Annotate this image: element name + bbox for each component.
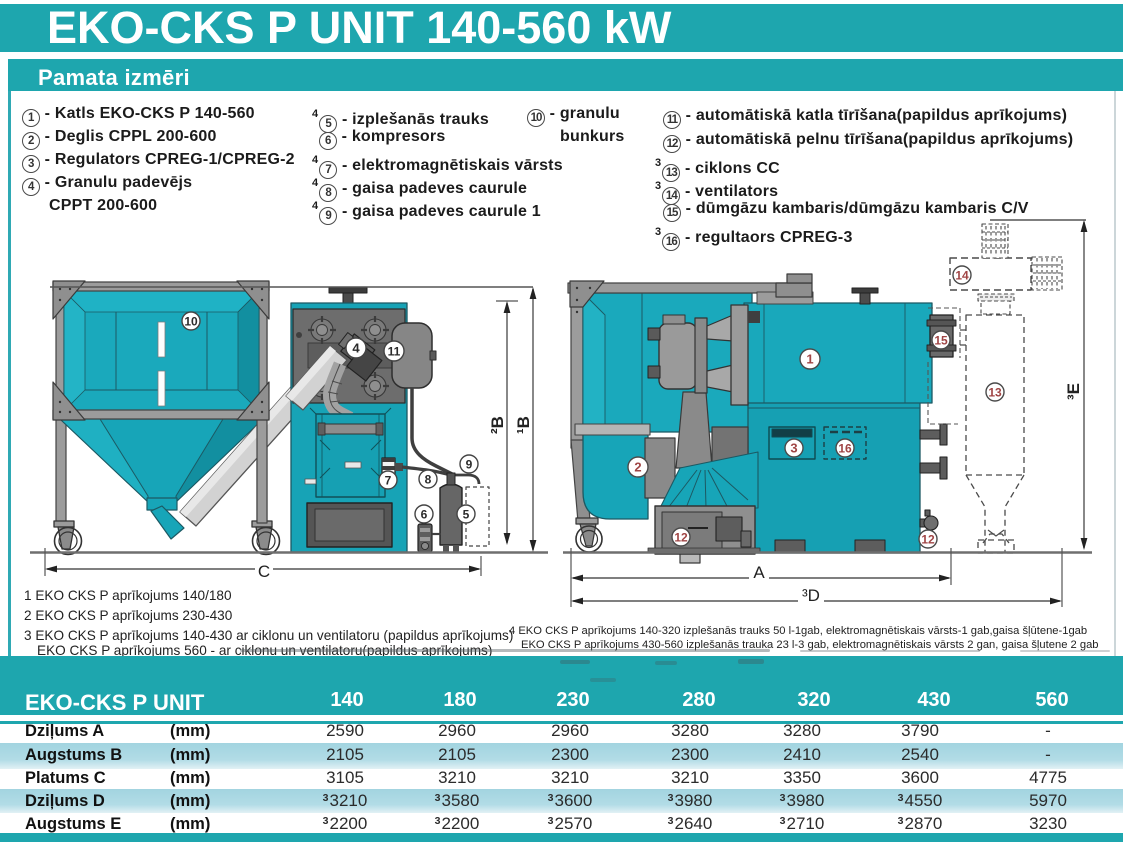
svg-text:3: 3 <box>790 441 797 456</box>
svg-text:2: 2 <box>634 460 641 475</box>
svg-text:8: 8 <box>425 473 432 487</box>
svg-text:¹B: ¹B <box>514 416 533 434</box>
svg-text:9: 9 <box>466 458 473 472</box>
svg-text:12: 12 <box>674 531 688 545</box>
svg-text:³E: ³E <box>1064 383 1083 400</box>
svg-text:4: 4 <box>352 341 360 356</box>
svg-text:C: C <box>258 562 270 581</box>
svg-text:7: 7 <box>385 474 392 488</box>
svg-text:14: 14 <box>955 269 969 283</box>
svg-text:11: 11 <box>388 345 401 359</box>
svg-text:²B: ²B <box>488 416 507 434</box>
svg-text:³D: ³D <box>802 586 820 605</box>
svg-text:A: A <box>753 563 765 582</box>
svg-text:5: 5 <box>463 508 470 522</box>
svg-text:10: 10 <box>184 315 198 329</box>
svg-text:15: 15 <box>934 334 948 348</box>
svg-text:6: 6 <box>421 508 428 522</box>
svg-text:12: 12 <box>921 533 935 547</box>
svg-text:16: 16 <box>838 442 852 456</box>
svg-text:1: 1 <box>806 352 813 367</box>
svg-text:13: 13 <box>988 386 1002 400</box>
